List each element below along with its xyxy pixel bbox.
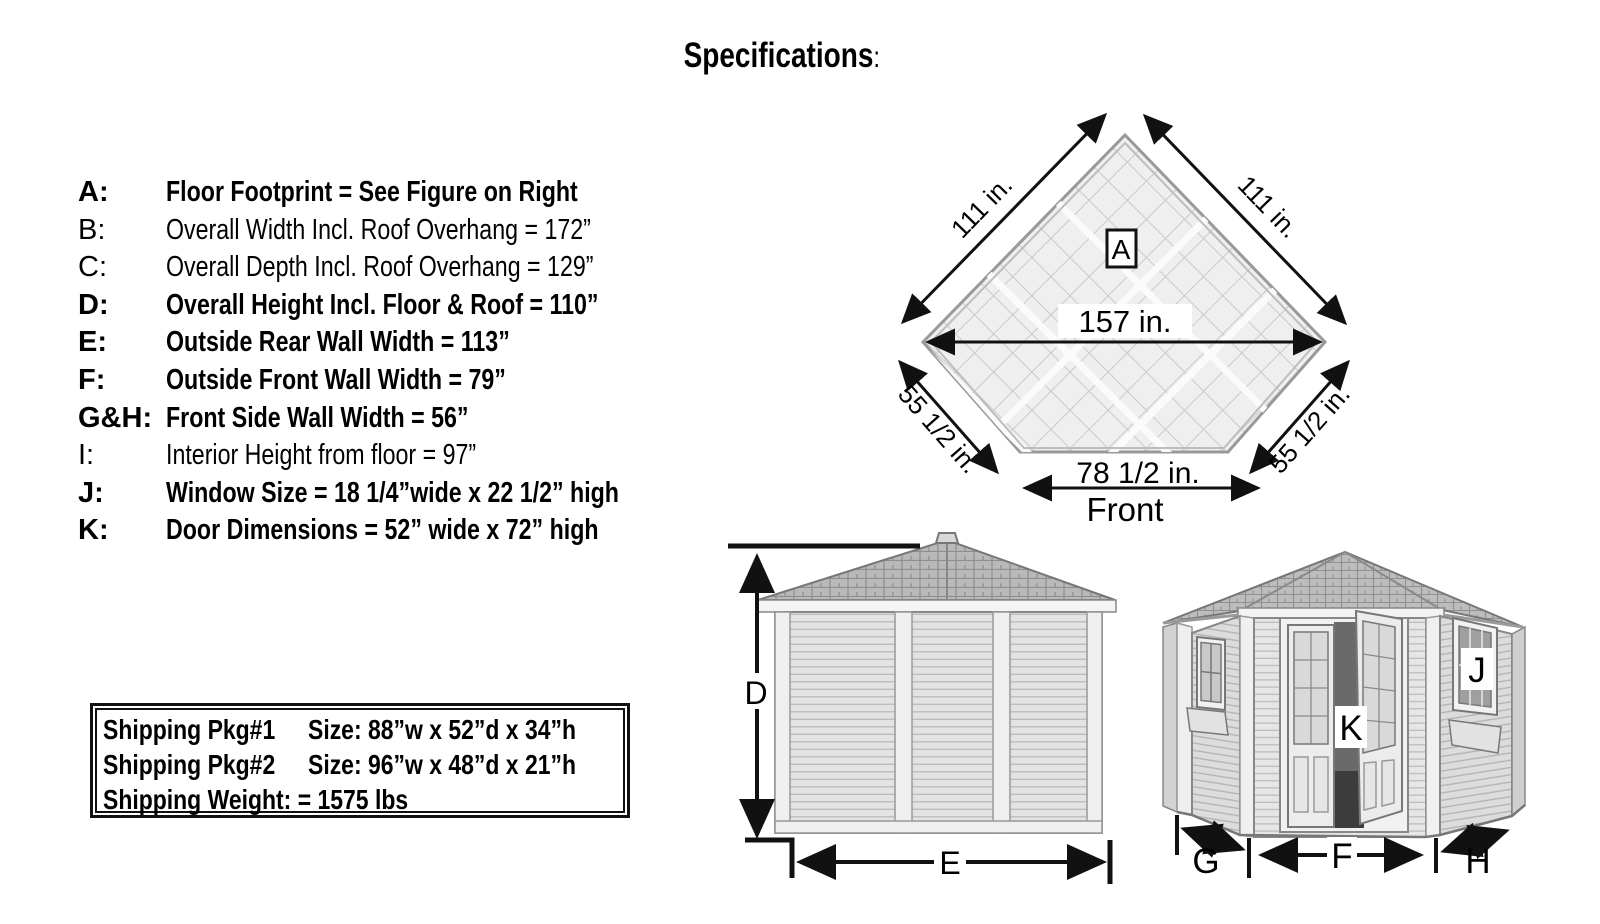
specifications-sheet: Specifications: A:Floor Footprint = See … bbox=[0, 0, 1600, 924]
shipping-pkg1-size: Size: 88”w x 52”d x 34”h bbox=[308, 712, 635, 747]
window-label: J bbox=[1468, 651, 1486, 690]
door-right-panel-2 bbox=[1382, 760, 1394, 806]
spec-key: G&H: bbox=[78, 400, 166, 438]
spec-row-b: B:Overall Width Incl. Roof Overhang = 17… bbox=[78, 212, 718, 250]
spec-key: C: bbox=[78, 249, 166, 287]
front-right-corner-trim bbox=[1426, 616, 1440, 837]
shipping-pkg2-size: Size: 96”w x 48”d x 21”h bbox=[308, 747, 635, 782]
spec-desc: Overall Depth Incl. Roof Overhang = 129” bbox=[166, 249, 594, 287]
spec-row-c: C:Overall Depth Incl. Roof Overhang = 12… bbox=[78, 249, 718, 287]
dim-label-left-wall: G bbox=[1192, 842, 1219, 881]
rear-mid-trim-2 bbox=[993, 612, 1010, 833]
dim-label-front-wall: 78 1/2 in. bbox=[1076, 457, 1199, 490]
spec-desc: Outside Front Wall Width = 79” bbox=[166, 362, 506, 400]
spec-key: K: bbox=[78, 512, 166, 550]
spec-desc: Floor Footprint = See Figure on Right bbox=[166, 174, 578, 212]
spec-key: B: bbox=[78, 212, 166, 250]
rear-base-trim bbox=[775, 821, 1102, 833]
spec-row-i: I:Interior Height from floor = 97” bbox=[78, 437, 718, 475]
spec-row-e: E:Outside Rear Wall Width = 113” bbox=[78, 324, 718, 362]
spec-desc: Front Side Wall Width = 56” bbox=[166, 400, 468, 438]
label-a: A bbox=[1112, 234, 1131, 265]
shipping-row-1: Shipping Pkg#1 Size: 88”w x 52”d x 34”h bbox=[103, 712, 617, 747]
front-left-corner-trim bbox=[1240, 616, 1254, 837]
shipping-weight-row: Shipping Weight: = 1575 lbs bbox=[103, 782, 617, 817]
rear-wall bbox=[775, 612, 1102, 833]
dim-label-upper-right: 111 in. bbox=[1232, 170, 1305, 244]
page-title-colon: : bbox=[874, 41, 881, 74]
spec-row-gh: G&H:Front Side Wall Width = 56” bbox=[78, 400, 718, 438]
spec-row-f: F:Outside Front Wall Width = 79” bbox=[78, 362, 718, 400]
shipping-info-box: Shipping Pkg#1 Size: 88”w x 52”d x 34”h … bbox=[90, 703, 630, 818]
spec-row-j: J:Window Size = 18 1/4”wide x 22 1/2” hi… bbox=[78, 475, 718, 513]
door-left-panel-2 bbox=[1314, 757, 1328, 812]
spec-desc: Overall Width Incl. Roof Overhang = 172” bbox=[166, 212, 591, 250]
shipping-row-2: Shipping Pkg#2 Size: 96”w x 48”d x 21”h bbox=[103, 747, 617, 782]
rear-right-wall-sliver bbox=[1512, 627, 1525, 816]
rear-roof-cap bbox=[936, 533, 958, 543]
rear-corner-trim-left bbox=[775, 612, 790, 833]
spec-desc: Overall Height Incl. Floor & Roof = 110” bbox=[166, 287, 599, 325]
door-label: K bbox=[1339, 709, 1362, 748]
spec-row-d: D:Overall Height Incl. Floor & Roof = 11… bbox=[78, 287, 718, 325]
dim-label-rear-width: E bbox=[939, 845, 960, 881]
door-right-panel-1 bbox=[1364, 762, 1376, 810]
spec-key: D: bbox=[78, 287, 166, 325]
spec-list: A:Floor Footprint = See Figure on Right … bbox=[78, 174, 718, 550]
spec-desc: Window Size = 18 1/4”wide x 22 1/2” high bbox=[166, 475, 619, 513]
door-left-panel-1 bbox=[1294, 757, 1308, 812]
dim-label-right-wall: H bbox=[1465, 842, 1490, 881]
rear-fascia bbox=[756, 600, 1116, 612]
dim-label-front-wall: F bbox=[1331, 837, 1352, 876]
shipping-weight: Shipping Weight: = 1575 lbs bbox=[103, 782, 475, 817]
spec-key: A: bbox=[78, 174, 166, 212]
spec-desc: Door Dimensions = 52” wide x 72” high bbox=[166, 512, 599, 550]
spec-key: I: bbox=[78, 437, 166, 475]
spec-row-k: K:Door Dimensions = 52” wide x 72” high bbox=[78, 512, 718, 550]
dim-label-upper-left: 111 in. bbox=[945, 170, 1018, 244]
rear-elevation-drawing: D E bbox=[700, 525, 1120, 895]
floor-plan-diagram: A 111 in. 111 in. 157 in. 55 1/2 in. 55 … bbox=[860, 85, 1420, 535]
spec-desc: Outside Rear Wall Width = 113” bbox=[166, 324, 510, 362]
spec-key: F: bbox=[78, 362, 166, 400]
rear-roof bbox=[758, 540, 1115, 600]
rear-corner-trim-right bbox=[1087, 612, 1102, 833]
spec-row-a: A:Floor Footprint = See Figure on Right bbox=[78, 174, 718, 212]
page-title: Specifications: bbox=[582, 36, 982, 76]
left-flower-box bbox=[1187, 708, 1228, 735]
dim-ext-line-bottom-left bbox=[745, 840, 792, 878]
dim-label-width: 157 in. bbox=[1078, 304, 1171, 339]
rear-left-wall-sliver bbox=[1163, 623, 1177, 812]
spec-key: E: bbox=[78, 324, 166, 362]
shipping-info-inner: Shipping Pkg#1 Size: 88”w x 52”d x 34”h … bbox=[95, 708, 625, 813]
page-title-text: Specifications bbox=[684, 36, 874, 75]
shipping-pkg2-name: Shipping Pkg#2 bbox=[103, 747, 308, 782]
spec-key: J: bbox=[78, 475, 166, 513]
dim-label-height: D bbox=[744, 675, 767, 711]
corner-view-drawing: K J G F H bbox=[1130, 515, 1600, 890]
rear-mid-trim-1 bbox=[895, 612, 912, 833]
shipping-pkg1-name: Shipping Pkg#1 bbox=[103, 712, 308, 747]
spec-desc: Interior Height from floor = 97” bbox=[166, 437, 476, 475]
